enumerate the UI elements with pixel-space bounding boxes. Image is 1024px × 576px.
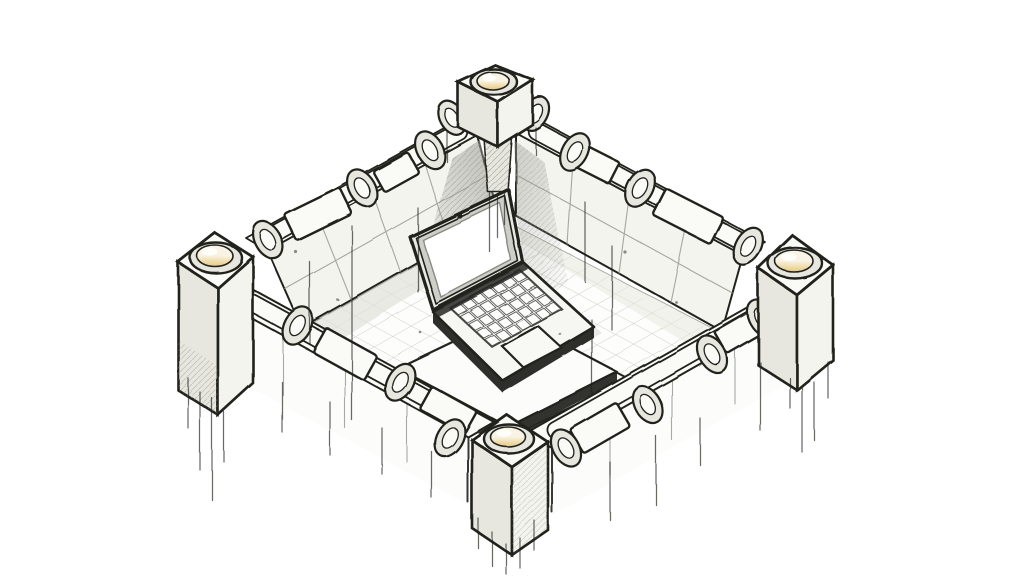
dome-light bbox=[775, 250, 813, 272]
tower-left bbox=[178, 233, 253, 415]
dome-highlight bbox=[202, 248, 218, 256]
dome-light bbox=[477, 72, 509, 90]
tower-right bbox=[758, 235, 833, 390]
dome-highlight bbox=[497, 429, 512, 437]
dome-highlight bbox=[781, 253, 797, 261]
sketch-canvas bbox=[0, 0, 1024, 576]
dome-light bbox=[197, 246, 233, 267]
dome-highlight bbox=[482, 75, 496, 82]
tower-bottom bbox=[472, 415, 548, 555]
webcam-dot bbox=[457, 213, 462, 218]
fortified-laptop-illustration bbox=[0, 0, 1024, 576]
sketch-root bbox=[178, 65, 833, 574]
